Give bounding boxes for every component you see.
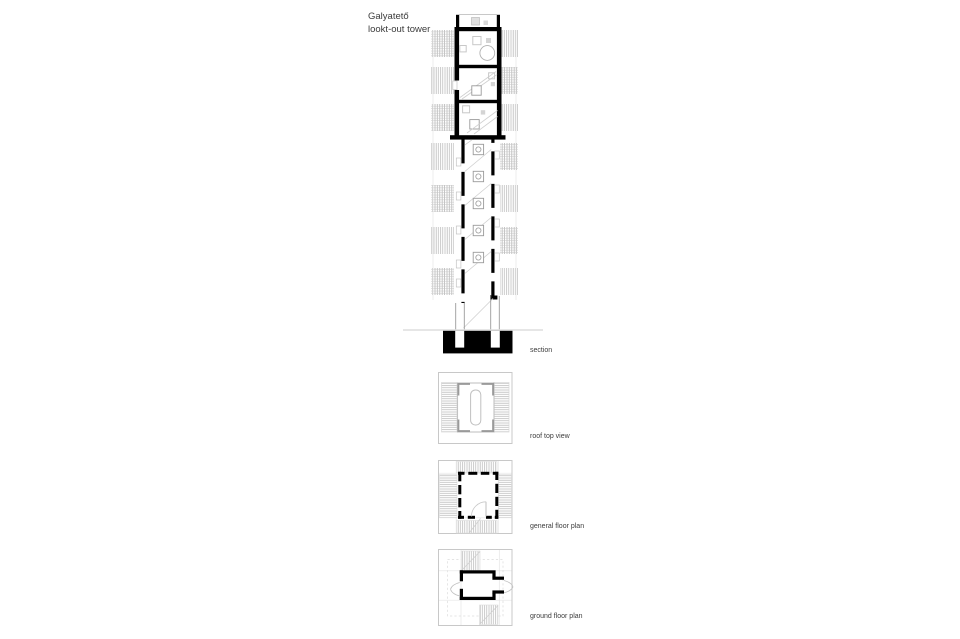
general-floor-plan-drawing — [439, 461, 513, 534]
architectural-sheet: Galyatető lookt-out tower — [0, 0, 960, 639]
drawing-sheet — [0, 0, 960, 639]
ground-floor-plan-drawing — [439, 550, 514, 626]
roof-top-view-label: roof top view — [530, 433, 570, 440]
section-label: section — [530, 347, 552, 354]
roof-top-view-drawing — [439, 373, 513, 444]
general-floor-plan-label: general floor plan — [530, 523, 584, 530]
section-drawing — [403, 15, 543, 354]
ground-floor-plan-label: ground floor plan — [530, 613, 583, 620]
